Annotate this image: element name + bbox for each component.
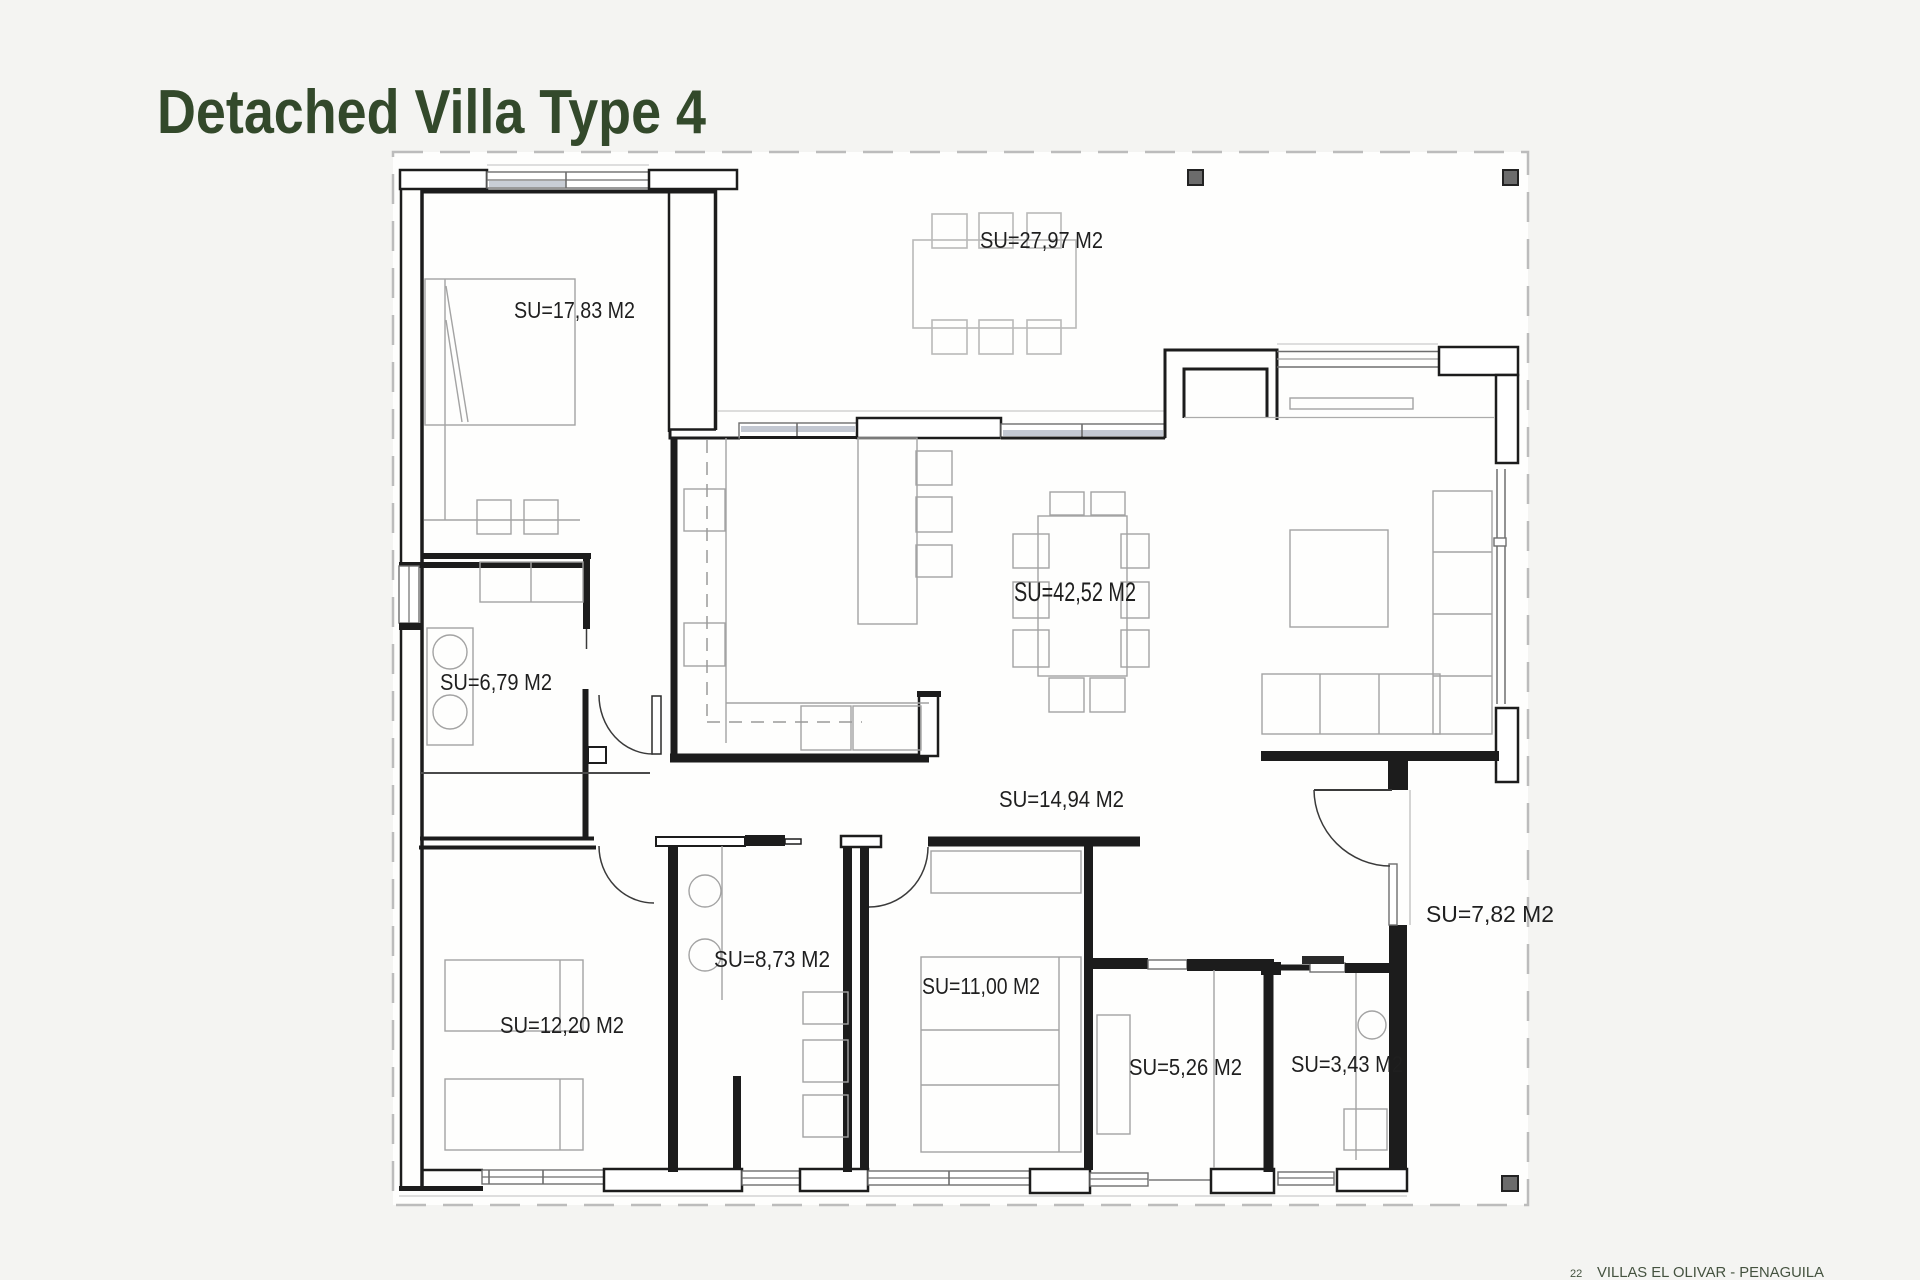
svg-text:SU=7,82 M2: SU=7,82 M2	[1426, 901, 1554, 927]
svg-text:SU=12,20 M2: SU=12,20 M2	[500, 1012, 624, 1038]
svg-text:SU=42,52 M2: SU=42,52 M2	[1014, 577, 1136, 607]
svg-text:VILLAS EL OLIVAR - PENAGUILA: VILLAS EL OLIVAR - PENAGUILA	[1597, 1264, 1824, 1280]
svg-text:SU=17,83 M2: SU=17,83 M2	[514, 297, 635, 323]
svg-text:22: 22	[1570, 1268, 1582, 1280]
svg-text:SU=8,73 M2: SU=8,73 M2	[714, 946, 830, 972]
svg-text:SU=27,97 M2: SU=27,97 M2	[980, 227, 1103, 253]
svg-text:Detached Villa Type 4: Detached Villa Type 4	[157, 78, 706, 147]
svg-text:SU=6,79 M2: SU=6,79 M2	[440, 669, 552, 695]
svg-text:SU=11,00 M2: SU=11,00 M2	[922, 973, 1040, 999]
svg-text:SU=5,26 M2: SU=5,26 M2	[1129, 1054, 1242, 1080]
svg-text:SU=3,43 M2: SU=3,43 M2	[1291, 1051, 1403, 1077]
svg-text:SU=14,94 M2: SU=14,94 M2	[999, 786, 1124, 812]
